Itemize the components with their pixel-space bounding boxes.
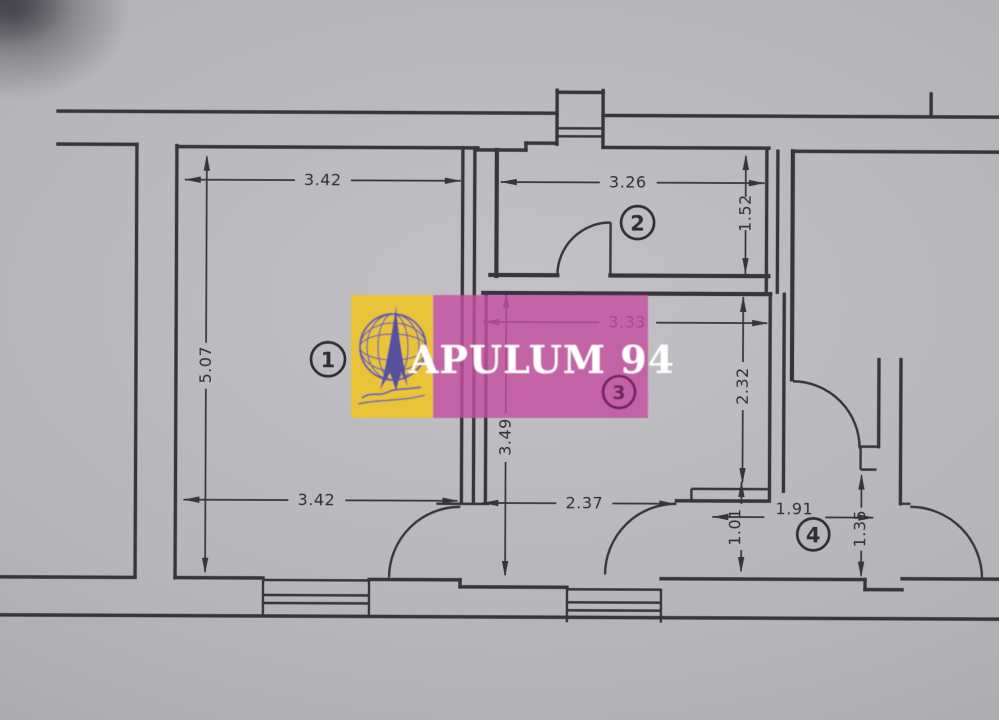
wall-segment bbox=[496, 150, 497, 276]
wall-segment bbox=[792, 151, 793, 379]
right-room-walls bbox=[791, 151, 999, 579]
entrance-door-arc bbox=[910, 507, 982, 579]
wall-segment bbox=[900, 360, 901, 504]
wall-segment bbox=[135, 144, 137, 576]
dim-label-room3-height: 2.32 bbox=[733, 367, 752, 405]
door-arc bbox=[389, 507, 460, 578]
wall-segment bbox=[603, 147, 769, 148]
watermark-brand-text: APULUM 94 bbox=[408, 337, 675, 382]
wall-segment bbox=[610, 275, 768, 276]
dim-label-room4-height-right: 1.35 bbox=[850, 510, 869, 548]
dim-label-room1-width-bottom: 3.42 bbox=[298, 490, 336, 509]
room3-number: 3 bbox=[612, 382, 625, 404]
wall-segment bbox=[603, 115, 999, 117]
wall-segment bbox=[661, 579, 865, 580]
wall-segment bbox=[777, 151, 778, 292]
dim-label-room2-width: 3.26 bbox=[609, 172, 647, 191]
dim-label-room4-height-left: 1.01 bbox=[725, 508, 744, 546]
window-room1 bbox=[263, 580, 369, 615]
room2-number: 2 bbox=[630, 212, 645, 236]
floorplan-photo: 3.42 3.26 1.52 5.07 3.33 2.32 3.49 3.42 … bbox=[0, 0, 999, 720]
dim-label-room1-width-top: 3.42 bbox=[304, 170, 342, 189]
watermark: APULUM 94 3 bbox=[351, 295, 675, 418]
dim-label-room2-height: 1.52 bbox=[736, 194, 755, 232]
hall-bottom-walls bbox=[661, 578, 998, 590]
dim-label-room4-width: 1.91 bbox=[775, 499, 813, 518]
room1-number: 1 bbox=[321, 348, 336, 372]
wall-segment bbox=[175, 146, 177, 578]
door-arc bbox=[605, 503, 676, 574]
wall-segment bbox=[0, 615, 998, 619]
dim-label-hall-width: 2.37 bbox=[566, 493, 604, 512]
wall-segment bbox=[58, 111, 557, 113]
room2-walls bbox=[477, 143, 778, 292]
chimney-flue bbox=[557, 90, 603, 144]
dim-label-room1-height: 5.07 bbox=[196, 346, 215, 384]
wall-segment bbox=[783, 294, 784, 491]
wall-segment bbox=[0, 577, 135, 578]
wall-segment bbox=[177, 147, 478, 148]
wall-segment bbox=[793, 151, 999, 152]
door-arc bbox=[793, 381, 860, 448]
wall-segment bbox=[766, 151, 767, 292]
dim-label-hall-height: 3.49 bbox=[496, 418, 515, 456]
door-arc bbox=[557, 222, 610, 275]
floorplan-drawing: 3.42 3.26 1.52 5.07 3.33 2.32 3.49 3.42 … bbox=[0, 0, 999, 720]
wall-segment bbox=[483, 293, 770, 294]
room4-number: 4 bbox=[806, 523, 821, 547]
wall-segment bbox=[769, 294, 770, 498]
